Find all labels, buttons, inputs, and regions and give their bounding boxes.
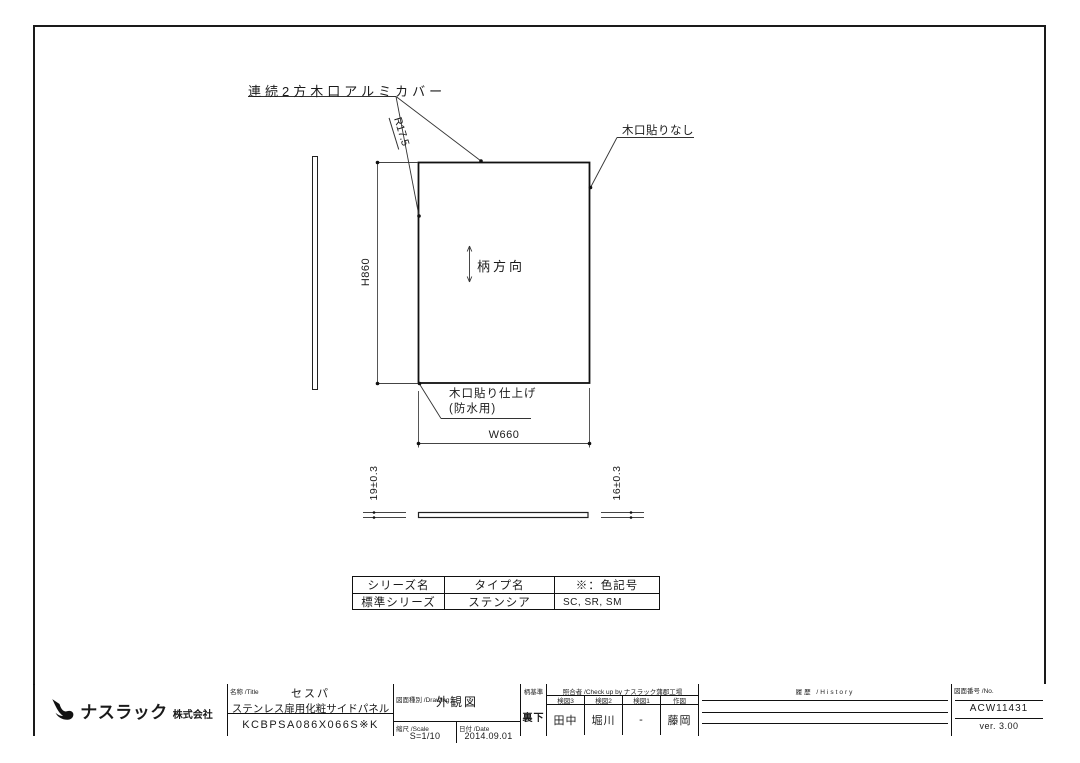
- title-upper: 名称 /Title セスパ ステンレス扉用化粧サイドパネル: [228, 685, 393, 714]
- number-rule: [955, 700, 1043, 701]
- history-line: [702, 723, 948, 724]
- spec-header-series: シリーズ名: [353, 577, 445, 594]
- product-title: ステンレス扉用化粧サイドパネル: [228, 701, 393, 716]
- dimension-height: H860: [360, 258, 372, 286]
- drawing-type-cell: 図面種別 /Drawing 外観図 縮尺 /Scale S=1/10 日付 /D…: [393, 684, 520, 736]
- annotation-grain-direction: 柄方向: [477, 256, 525, 275]
- company-name: ナスラック: [80, 698, 168, 723]
- side-view-outline: [313, 157, 318, 390]
- annotation-no-edge-banding: 木口貼りなし: [622, 122, 694, 138]
- number-rule: [955, 718, 1043, 719]
- annotation-edge-finish: 木口貼り仕上げ (防水用): [449, 387, 537, 417]
- drawing-version: ver. 3.00: [952, 721, 1046, 731]
- scale-label: 縮尺 /Scale: [396, 723, 429, 733]
- drawing-linework: [0, 0, 1080, 763]
- checkup-cell: 照合者 /Check up by ナスラック蒲郡工場 検図3 検図2 検図1 作…: [546, 684, 698, 736]
- checkup-col3-value: 田中: [547, 705, 585, 735]
- dimension-thickness-right: 16±0.3: [611, 465, 623, 500]
- scale-cell: 縮尺 /Scale S=1/10: [394, 722, 457, 743]
- section-view-outline: [419, 513, 589, 518]
- spec-header-color-code: ※：色記号: [555, 577, 659, 594]
- checkup-col3-label: 検図3: [547, 696, 585, 705]
- checkup-draw-label: 作図: [661, 696, 698, 705]
- company-logo-cell: ナスラック 株式会社: [35, 684, 227, 736]
- drawing-type-upper: 図面種別 /Drawing 外観図: [394, 693, 520, 722]
- drawing-type-label: 図面種別 /Drawing: [396, 694, 449, 704]
- pattern-ref-label: 柄基準: [521, 684, 546, 696]
- drawing-number-cell: 図面番号 /No. ACW11431 ver. 3.00: [951, 684, 1046, 736]
- spec-value-type: ステンシア: [445, 594, 555, 610]
- spec-value-series: 標準シリーズ: [353, 594, 445, 610]
- pattern-ref-value: 裏下: [521, 709, 546, 724]
- dimension-width: W660: [489, 429, 520, 441]
- date-cell: 日付 /Date 2014.09.01: [457, 722, 520, 743]
- nasluck-logo-icon: [49, 698, 75, 722]
- checkup-draw-value: 藤岡: [661, 705, 698, 735]
- history-label: 履歴 /History: [699, 684, 951, 696]
- spec-header-type: タイプ名: [445, 577, 555, 594]
- drawing-sheet: 連続2方木口アルミカバー R17.5 木口貼りなし 柄方向 木口貼り仕上げ (防…: [0, 0, 1080, 763]
- checkup-col1-value: -: [623, 705, 661, 735]
- history-line: [702, 712, 948, 713]
- history-cell: 履歴 /History: [698, 684, 951, 736]
- checkup-col2-value: 堀川: [585, 705, 623, 735]
- date-label: 日付 /Date: [459, 723, 489, 733]
- title-field-label: 名称 /Title: [230, 686, 259, 696]
- product-code: KCBPSA086X066S※K: [228, 714, 393, 735]
- checkup-col1-label: 検図1: [623, 696, 661, 705]
- dimension-thickness-left: 19±0.3: [368, 465, 380, 500]
- drawing-number-label: 図面番号 /No.: [954, 685, 994, 695]
- pattern-ref-cell: 柄基準 裏下: [520, 684, 546, 736]
- annotation-edge-finish-line2: (防水用): [449, 402, 537, 417]
- drawing-number-value: ACW11431: [952, 703, 1046, 714]
- checkup-col2-label: 検図2: [585, 696, 623, 705]
- annotation-edge-finish-line1: 木口貼り仕上げ: [449, 387, 537, 402]
- title-cell: 名称 /Title セスパ ステンレス扉用化粧サイドパネル KCBPSA086X…: [227, 684, 393, 736]
- spec-table: シリーズ名 タイプ名 ※：色記号 標準シリーズ ステンシア SC, SR, SM: [352, 576, 660, 610]
- height-dimension-lines: [378, 163, 419, 384]
- history-line: [702, 700, 948, 701]
- company-suffix: 株式会社: [173, 706, 213, 721]
- spec-value-color-code: SC, SR, SM: [555, 594, 659, 610]
- annotation-edge-cover: 連続2方木口アルミカバー: [248, 81, 446, 100]
